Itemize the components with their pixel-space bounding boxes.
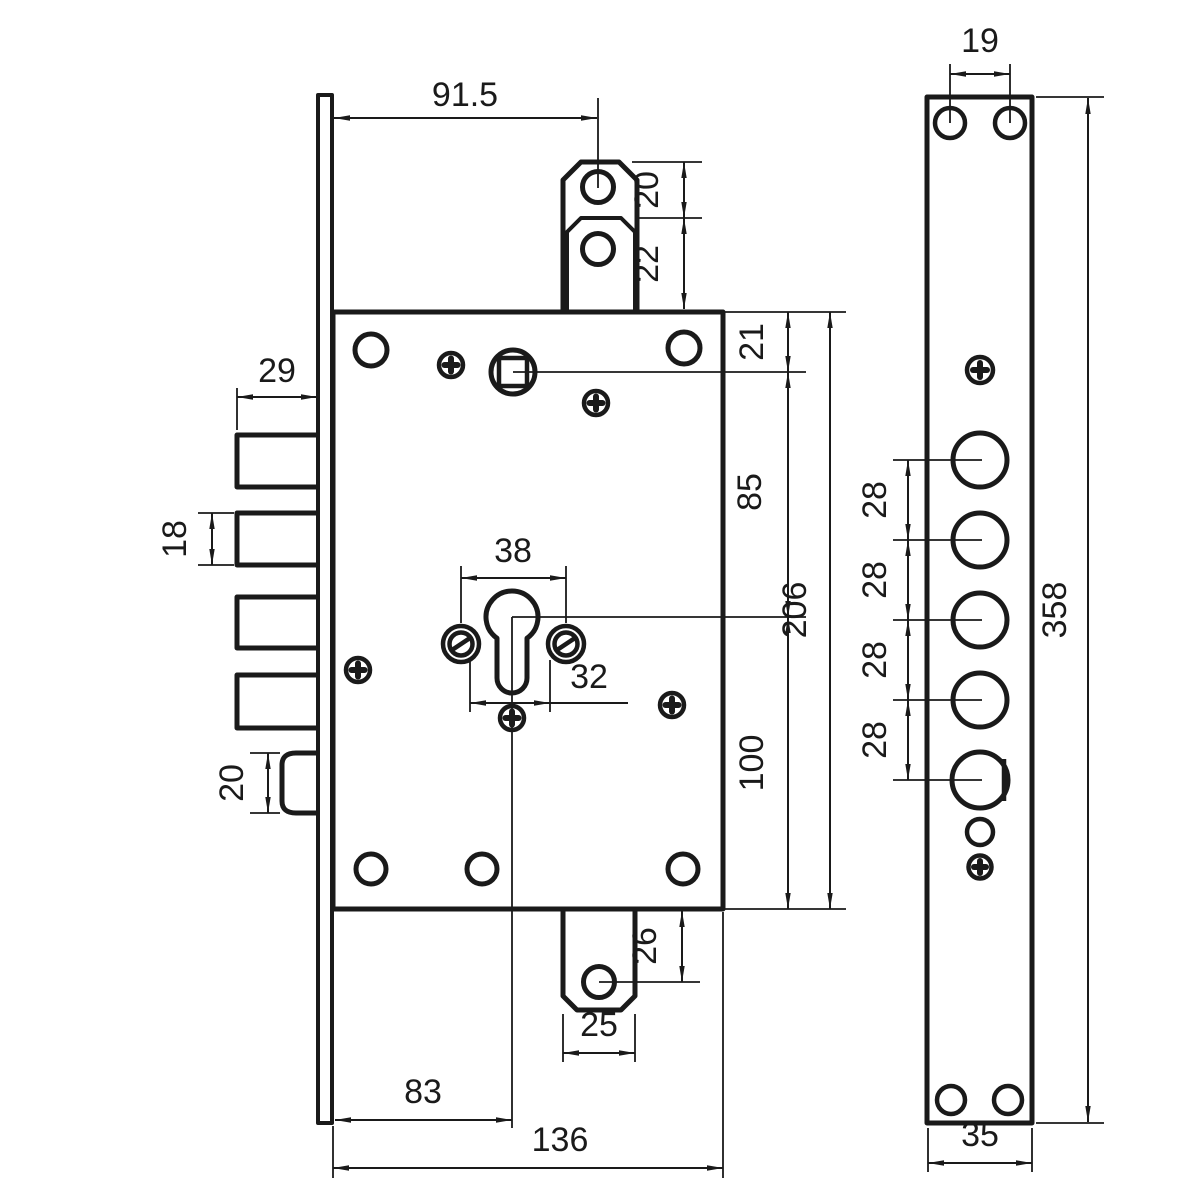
drawing-canvas: 91.5 20 22 21 29 85 206 18 38 32 100 20 … xyxy=(0,0,1200,1200)
dim-label-32: 32 xyxy=(570,658,608,696)
mounting-hole-bottom-middle xyxy=(467,854,497,884)
screw-left-side xyxy=(346,658,370,682)
dim-label-83: 83 xyxy=(404,1073,442,1111)
faceplate xyxy=(318,95,332,1123)
dim-label-18: 18 xyxy=(156,520,194,558)
mounting-hole-bottom-left xyxy=(356,854,386,884)
dim-label-35: 35 xyxy=(961,1116,999,1154)
dim-label-29: 29 xyxy=(258,352,296,390)
dim-label-25: 25 xyxy=(580,1006,618,1044)
dim-label-28-4: 28 xyxy=(856,721,894,759)
dim-label-26: 26 xyxy=(626,927,664,965)
deadbolt-3 xyxy=(237,597,319,648)
side-small-hole xyxy=(967,819,993,845)
dim-label-20-tab: 20 xyxy=(628,171,666,209)
side-hole-bottom-left xyxy=(937,1086,965,1114)
dim-label-21: 21 xyxy=(733,323,771,361)
side-screw-upper xyxy=(967,357,993,383)
dim-label-22: 22 xyxy=(628,245,666,283)
dim-label-85: 85 xyxy=(731,473,769,511)
top-tab-hole-lower xyxy=(583,234,614,265)
mounting-hole-top-left xyxy=(355,334,387,366)
side-screw-lower xyxy=(969,856,992,879)
dim-label-358: 358 xyxy=(1036,582,1074,639)
dim-label-28-3: 28 xyxy=(856,641,894,679)
side-hole-bottom-right xyxy=(994,1086,1022,1114)
dim-label-19: 19 xyxy=(961,22,999,60)
screw-top-left xyxy=(439,353,463,377)
latch-bolt xyxy=(282,753,320,813)
cylinder-screw-left xyxy=(443,626,479,662)
deadbolt-1 xyxy=(237,435,319,487)
dim-label-100: 100 xyxy=(733,735,771,792)
dim-label-38: 38 xyxy=(494,532,532,570)
deadbolt-4 xyxy=(237,675,319,728)
technical-drawing-lock: 91.5 20 22 21 29 85 206 18 38 32 100 20 … xyxy=(0,0,1200,1200)
dim-label-91-5: 91.5 xyxy=(432,76,498,114)
cylinder-screw-right xyxy=(548,626,584,662)
screw-lower-right xyxy=(660,693,684,717)
dim-label-28-2: 28 xyxy=(856,561,894,599)
dim-label-28-1: 28 xyxy=(856,481,894,519)
dim-label-206: 206 xyxy=(776,582,814,639)
side-view xyxy=(927,97,1032,1123)
screw-upper-middle xyxy=(584,391,608,415)
dim-label-136: 136 xyxy=(532,1121,589,1159)
mounting-hole-bottom-right xyxy=(668,854,698,884)
deadbolt-2 xyxy=(237,513,319,565)
mounting-hole-top-right xyxy=(668,332,700,364)
dim-label-20-latch: 20 xyxy=(213,764,251,802)
